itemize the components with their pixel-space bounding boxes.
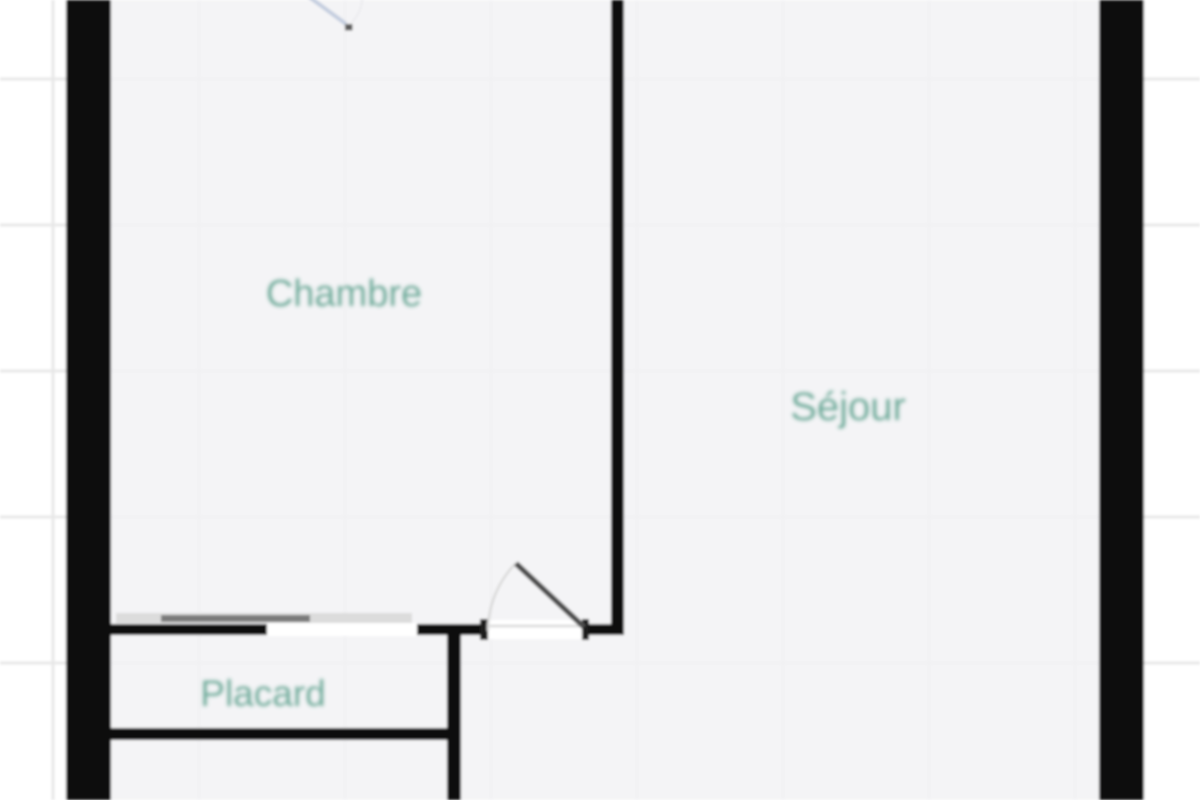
- svg-text:Placard: Placard: [200, 673, 325, 714]
- svg-text:Séjour: Séjour: [790, 385, 906, 429]
- svg-text:Chambre: Chambre: [266, 273, 422, 315]
